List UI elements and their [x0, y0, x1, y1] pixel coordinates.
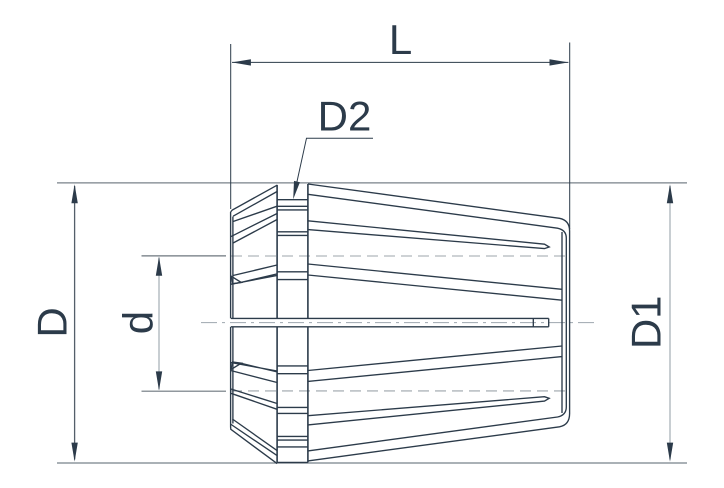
svg-text:D: D — [28, 307, 75, 337]
svg-text:d: d — [115, 311, 162, 334]
svg-text:L: L — [389, 16, 412, 63]
svg-text:D2: D2 — [318, 93, 372, 140]
svg-text:D1: D1 — [623, 295, 670, 349]
